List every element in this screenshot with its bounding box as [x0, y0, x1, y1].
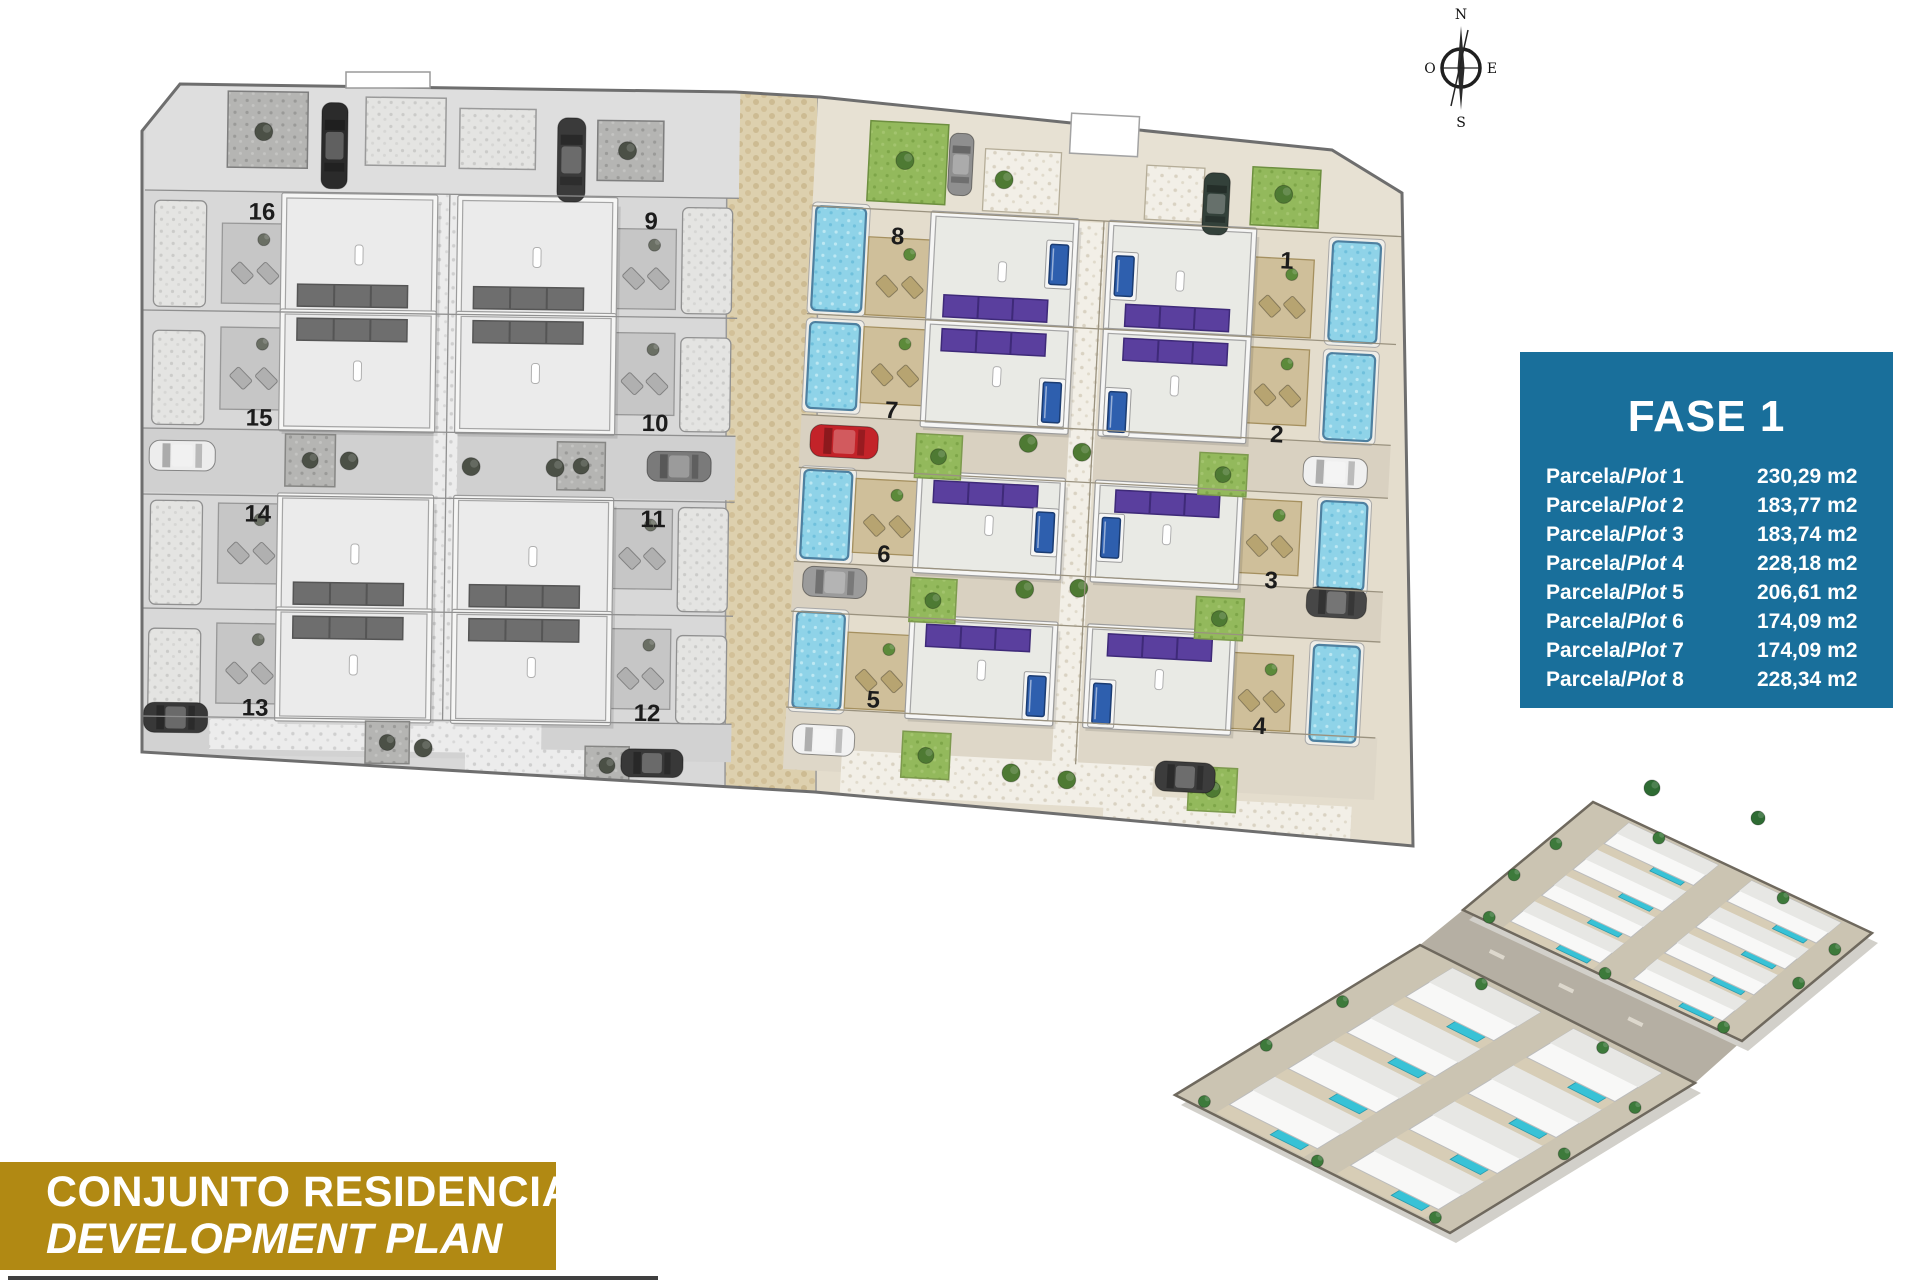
- tree-highlight: [1514, 869, 1519, 874]
- car-rear-window: [1196, 766, 1203, 790]
- car-roof: [1207, 193, 1226, 214]
- plot-number-3: 3: [1264, 567, 1279, 595]
- car-windshield: [325, 120, 345, 131]
- tree-icon: [1215, 466, 1232, 483]
- row-number: 5: [1672, 581, 1684, 604]
- tree-canopy: [573, 458, 589, 474]
- car-windshield: [162, 443, 170, 467]
- tree-icon: [1483, 911, 1495, 923]
- solar-panel-divider: [968, 482, 969, 504]
- pool-water: [811, 206, 866, 312]
- site-plan: 16151413910111287651234: [137, 72, 1413, 854]
- solar-panel-array: [933, 481, 1038, 508]
- row-area: 228,18 m2: [1757, 549, 1873, 578]
- house: [279, 309, 440, 436]
- tree-icon: [1777, 892, 1789, 904]
- phase-legend-box: FASE 1 Parcela/Plot 1230,29 m2 Parcela/P…: [1520, 352, 1893, 708]
- tree-icon: [1273, 509, 1286, 522]
- tree-canopy: [462, 457, 480, 475]
- car-rear-window: [188, 706, 195, 730]
- row-prefix: Parcela/: [1546, 639, 1627, 662]
- tree-canopy: [255, 123, 273, 141]
- tree-icon: [1644, 780, 1660, 796]
- tree-icon: [255, 123, 273, 141]
- tree-highlight: [1835, 944, 1840, 949]
- house: [450, 609, 615, 728]
- tree-canopy: [1215, 466, 1232, 483]
- tree-icon: [414, 739, 432, 757]
- tree-highlight: [1565, 1148, 1570, 1153]
- tree-icon: [252, 634, 264, 646]
- row-area: 230,29 m2: [1757, 462, 1873, 491]
- pool-water: [1328, 241, 1381, 343]
- tree-icon: [1429, 1211, 1441, 1223]
- terrace-deck: [221, 223, 286, 304]
- tree-highlight: [1267, 1040, 1272, 1045]
- tree-highlight: [1659, 832, 1664, 837]
- solar-panel-divider: [995, 628, 996, 650]
- tree-canopy: [340, 452, 358, 470]
- tree-icon: [258, 234, 270, 246]
- tree-highlight: [1724, 1022, 1729, 1027]
- solar-panel-array: [297, 318, 407, 342]
- compass-west-label: O: [1424, 61, 1435, 77]
- roof-vent: [533, 247, 541, 267]
- plot-number-7: 7: [884, 397, 899, 425]
- roof-vent: [1155, 669, 1164, 689]
- car-windshield: [1315, 459, 1324, 483]
- tree-icon: [1057, 770, 1076, 789]
- house: [455, 311, 620, 438]
- row-prefix: Parcela/: [1546, 581, 1627, 604]
- tree-canopy: [1015, 580, 1034, 599]
- plot-number-1: 1: [1280, 247, 1295, 275]
- plot-number-11: 11: [640, 506, 666, 533]
- swimming-pool: [1324, 237, 1386, 348]
- tree-highlight: [1318, 1155, 1323, 1160]
- bottom-edge-strip: [8, 1274, 658, 1280]
- house: [456, 195, 621, 322]
- phase-title: FASE 1: [1520, 392, 1893, 442]
- terrace-deck: [860, 327, 928, 406]
- plot-number-5: 5: [866, 686, 881, 714]
- terrace-deck: [613, 229, 676, 310]
- tree-canopy: [917, 747, 934, 764]
- shrub-square: [914, 434, 962, 480]
- car-windshield: [561, 135, 583, 145]
- tree-icon: [1508, 869, 1520, 881]
- tree-canopy: [1019, 434, 1038, 453]
- garden-square: [459, 108, 536, 169]
- plunge-pool: [1030, 508, 1058, 557]
- tree-canopy: [302, 452, 318, 468]
- car-roof: [165, 706, 186, 728]
- phase2-block: 161514139101112: [137, 84, 741, 786]
- pool-water: [1317, 501, 1368, 591]
- row-plot-word: Plot: [1627, 465, 1667, 488]
- tree-icon: [1002, 763, 1021, 782]
- plot-area-row: Parcela/Plot 3183,74 m2: [1546, 520, 1873, 549]
- tree-highlight: [1783, 892, 1788, 897]
- row-plot-word: Plot: [1627, 494, 1667, 517]
- tree-icon: [1599, 967, 1611, 979]
- row-plot-word: Plot: [1627, 668, 1667, 691]
- car-roof: [561, 146, 581, 173]
- tree-icon: [647, 343, 659, 355]
- tree-highlight: [1605, 968, 1610, 973]
- plunge-pool: [1037, 378, 1065, 427]
- pool-water: [806, 322, 860, 410]
- car: [802, 566, 867, 599]
- entrance-gap: [346, 72, 430, 88]
- row-area: 183,77 m2: [1757, 491, 1873, 520]
- side-garden: [681, 208, 732, 315]
- car-roof: [833, 429, 856, 454]
- solar-panel-divider: [960, 626, 961, 648]
- row-area: 183,74 m2: [1757, 520, 1873, 549]
- row-plot-word: Plot: [1627, 610, 1667, 633]
- solar-panel-divider: [1002, 484, 1003, 506]
- pool-water: [792, 612, 845, 710]
- compass-rose: N S O E: [1424, 7, 1497, 131]
- side-garden: [677, 508, 728, 613]
- tree-highlight: [1799, 977, 1804, 982]
- row-area: 174,09 m2: [1757, 607, 1873, 636]
- car-roof: [642, 753, 662, 773]
- pool-water: [1309, 645, 1360, 743]
- row-prefix: Parcela/: [1546, 668, 1627, 691]
- car-roof: [824, 571, 846, 594]
- tree-highlight: [1635, 1102, 1640, 1107]
- solar-panel-array: [926, 624, 1031, 651]
- terrace-deck: [220, 327, 285, 410]
- solar-panel-array: [469, 585, 579, 609]
- solar-panel-divider: [1010, 332, 1011, 354]
- shrub-square: [909, 577, 957, 623]
- house: [280, 193, 441, 320]
- tree-highlight: [1482, 978, 1487, 983]
- solar-panel-divider: [977, 297, 978, 319]
- row-area: 206,61 m2: [1757, 578, 1873, 607]
- car: [143, 702, 207, 733]
- row-number: 2: [1672, 494, 1684, 517]
- car-roof: [172, 444, 193, 466]
- tree-canopy: [1644, 780, 1660, 796]
- tree-icon: [995, 170, 1014, 189]
- development-plan-page: 16151413910111287651234 N S O E FASE 1 P…: [0, 0, 1920, 1280]
- swimming-pool: [788, 607, 849, 714]
- row-number: 4: [1672, 552, 1684, 575]
- plot-number-14: 14: [244, 500, 272, 527]
- gravel-square: [1144, 165, 1205, 222]
- tree-icon: [1653, 832, 1665, 844]
- tree-icon: [546, 459, 564, 477]
- plot-area-row: Parcela/Plot 5206,61 m2: [1546, 578, 1873, 607]
- tree-icon: [1198, 1096, 1210, 1108]
- terrace: [860, 327, 928, 406]
- car-roof: [952, 154, 969, 175]
- tree-highlight: [1205, 1096, 1210, 1101]
- row-number: 1: [1672, 465, 1684, 488]
- tree-canopy: [930, 448, 947, 465]
- roof-vent: [1162, 525, 1171, 545]
- plot-area-row: Parcela/Plot 8228,34 m2: [1546, 665, 1873, 694]
- row-number: 3: [1672, 523, 1684, 546]
- solar-panel-divider: [1142, 636, 1143, 658]
- roof-vent: [1170, 376, 1179, 396]
- plot-area-row: Parcela/Plot 1230,29 m2: [1546, 462, 1873, 491]
- gravel-square: [982, 149, 1061, 215]
- tree-canopy: [995, 170, 1014, 189]
- solar-panel-divider: [1159, 306, 1160, 328]
- roof-vent: [353, 361, 361, 381]
- tree-icon: [643, 639, 655, 651]
- entrance-gap-group: [1070, 113, 1140, 157]
- plunge-pool: [1096, 513, 1124, 562]
- car: [1302, 456, 1367, 489]
- tree-icon: [1015, 580, 1034, 599]
- roof-vent: [992, 366, 1001, 386]
- plot-area-row: Parcela/Plot 6174,09 m2: [1546, 607, 1873, 636]
- terrace: [1236, 499, 1302, 576]
- tree-icon: [1211, 610, 1228, 627]
- entrance-gap: [1070, 113, 1140, 157]
- row-plot-word: Plot: [1627, 523, 1667, 546]
- pool-water: [800, 470, 853, 560]
- car: [809, 424, 879, 460]
- car-windshield: [952, 145, 970, 153]
- tree-canopy: [1002, 763, 1021, 782]
- car: [792, 723, 855, 756]
- car-rear-window: [692, 455, 699, 479]
- swimming-pool: [802, 318, 865, 415]
- row-number: 8: [1672, 668, 1684, 691]
- tree-canopy: [1274, 185, 1293, 204]
- solar-panel-divider: [976, 331, 977, 353]
- plunge-pool: [1103, 387, 1131, 436]
- row-plot-word: Plot: [1627, 581, 1667, 604]
- house: [274, 607, 435, 726]
- swimming-pool: [1319, 349, 1380, 446]
- side-garden: [680, 338, 731, 433]
- swimming-pool: [796, 465, 857, 564]
- car-rear-window: [1348, 591, 1355, 615]
- tree-icon: [883, 643, 896, 656]
- tree-icon: [573, 458, 589, 474]
- tree-icon: [1597, 1042, 1609, 1054]
- roof-vent: [998, 262, 1007, 282]
- solar-panel-divider: [1157, 340, 1158, 362]
- plot-number-4: 4: [1252, 713, 1267, 741]
- plunge-pool: [1110, 252, 1138, 301]
- solar-panel-divider: [1149, 492, 1150, 514]
- solar-panel-array: [473, 321, 583, 345]
- terrace-deck: [1236, 499, 1302, 576]
- plot-number-2: 2: [1269, 421, 1284, 449]
- solar-panel-array: [293, 582, 403, 606]
- garden-square: [365, 97, 446, 166]
- side-garden: [676, 635, 727, 724]
- roof-vent: [351, 544, 359, 564]
- roof-vent: [355, 245, 363, 265]
- row-prefix: Parcela/: [1546, 465, 1627, 488]
- tree-icon: [1281, 358, 1294, 371]
- plot-number-6: 6: [877, 541, 892, 569]
- plot-area-row: Parcela/Plot 4228,18 m2: [1546, 549, 1873, 578]
- car-windshield: [633, 752, 641, 774]
- solar-panel-divider: [1177, 637, 1178, 659]
- row-number: 7: [1672, 639, 1684, 662]
- tree-highlight: [1651, 781, 1658, 788]
- tree-icon: [1629, 1101, 1641, 1113]
- terrace-deck: [608, 629, 671, 710]
- row-prefix: Parcela/: [1546, 523, 1627, 546]
- solar-panel-array: [473, 287, 583, 311]
- shrub-square: [285, 434, 336, 487]
- roof-vent: [1175, 271, 1184, 291]
- roof-vent: [977, 660, 986, 680]
- shrub-square: [365, 721, 410, 764]
- terrace-deck: [216, 623, 281, 704]
- plot-area-table: Parcela/Plot 1230,29 m2 Parcela/Plot 218…: [1520, 462, 1893, 694]
- car: [647, 451, 711, 482]
- pool-water: [1323, 353, 1375, 441]
- tree-icon: [1260, 1039, 1272, 1051]
- plot-number-9: 9: [644, 208, 658, 235]
- car-roof: [1324, 461, 1346, 484]
- tree-icon: [256, 338, 268, 350]
- tree-icon: [648, 239, 660, 251]
- solar-panel-array: [1123, 338, 1228, 365]
- tree-icon: [1558, 1148, 1570, 1160]
- tree-icon: [895, 151, 914, 170]
- car-windshield: [1166, 764, 1174, 788]
- compass-south-label: S: [1456, 115, 1466, 131]
- title-banner: CONJUNTO RESIDENCIAL DEVELOPMENT PLAN: [0, 1162, 556, 1270]
- plunge-pool: [1022, 671, 1050, 720]
- plot-number-13: 13: [242, 694, 269, 721]
- solar-panel-array: [1125, 304, 1230, 331]
- banner-line-english: DEVELOPMENT PLAN: [46, 1216, 556, 1263]
- solar-panel-array: [943, 295, 1048, 322]
- tree-icon: [891, 489, 904, 502]
- car-rear-window: [1205, 216, 1225, 223]
- tree-canopy: [1057, 770, 1076, 789]
- car-rear-window: [195, 444, 202, 468]
- tree-highlight: [1490, 912, 1495, 917]
- solar-panel-array: [293, 616, 403, 640]
- car: [557, 118, 586, 202]
- car-windshield: [804, 727, 813, 751]
- tree-icon: [1793, 977, 1805, 989]
- swimming-pool: [1313, 497, 1372, 596]
- tree-highlight: [1603, 1042, 1608, 1047]
- car-rear-window: [664, 752, 671, 774]
- tree-icon: [1751, 811, 1765, 825]
- tree-icon: [1274, 185, 1293, 204]
- side-garden: [153, 200, 206, 307]
- plot-number-15: 15: [246, 404, 273, 431]
- row-area: 174,09 m2: [1757, 636, 1873, 665]
- tree-canopy: [895, 151, 914, 170]
- solar-panel-divider: [1184, 494, 1185, 516]
- plunge-pool: [1044, 240, 1072, 289]
- car: [947, 133, 974, 196]
- shrub-square: [901, 731, 951, 779]
- solar-panel-divider: [1012, 298, 1013, 320]
- tree-canopy: [925, 592, 942, 609]
- compass-east-label: E: [1487, 61, 1497, 77]
- tree-icon: [1718, 1021, 1730, 1033]
- terrace-deck: [1244, 347, 1310, 426]
- terrace: [221, 223, 286, 304]
- plunge-pool: [1088, 679, 1116, 728]
- swimming-pool: [1305, 640, 1364, 747]
- car: [149, 440, 215, 471]
- car-roof: [1175, 766, 1195, 789]
- car-windshield: [815, 569, 824, 593]
- car-windshield: [156, 705, 164, 729]
- tree-canopy: [414, 739, 432, 757]
- terrace: [613, 229, 676, 310]
- tree-canopy: [1072, 443, 1091, 462]
- car-rear-window: [324, 163, 344, 172]
- solar-panel-divider: [1194, 308, 1195, 330]
- tree-icon: [1829, 943, 1841, 955]
- row-prefix: Parcela/: [1546, 494, 1627, 517]
- tree-icon: [1072, 443, 1091, 462]
- roof-vent: [984, 515, 993, 535]
- plot-area-row: Parcela/Plot 2183,77 m2: [1546, 491, 1873, 520]
- side-garden: [149, 500, 202, 605]
- tree-icon: [917, 747, 934, 764]
- site-content: 16151413910111287651234: [137, 84, 1413, 854]
- tree-icon: [1337, 996, 1349, 1008]
- car-windshield: [1207, 185, 1227, 193]
- car-roof: [669, 455, 690, 477]
- car: [621, 749, 683, 778]
- house: [452, 495, 617, 620]
- car-roof: [325, 132, 343, 160]
- car: [1154, 760, 1215, 793]
- tree-icon: [618, 142, 636, 160]
- solar-panel-array: [297, 284, 407, 308]
- terrace: [1244, 347, 1310, 426]
- tree-highlight: [1436, 1212, 1441, 1217]
- car-rear-window: [835, 729, 842, 753]
- terrace: [216, 623, 281, 704]
- car-rear-window: [1347, 461, 1355, 485]
- compass-north-label: N: [1455, 7, 1467, 23]
- terrace: [608, 629, 671, 710]
- row-prefix: Parcela/: [1546, 552, 1627, 575]
- solar-panel-divider: [1192, 342, 1193, 364]
- car-windshield: [660, 454, 668, 478]
- plot-number-16: 16: [248, 198, 275, 225]
- roof-vent: [531, 363, 539, 383]
- tree-highlight: [1343, 996, 1348, 1001]
- car-windshield: [1318, 590, 1326, 614]
- tree-canopy: [546, 459, 564, 477]
- car-rear-window: [857, 429, 865, 455]
- house: [276, 493, 437, 618]
- tree-highlight: [1758, 812, 1764, 818]
- row-plot-word: Plot: [1627, 552, 1667, 575]
- solar-panel-array: [941, 329, 1046, 356]
- tree-canopy: [379, 734, 395, 750]
- solar-panel-array: [469, 619, 579, 643]
- plot-area-row: Parcela/Plot 7174,09 m2: [1546, 636, 1873, 665]
